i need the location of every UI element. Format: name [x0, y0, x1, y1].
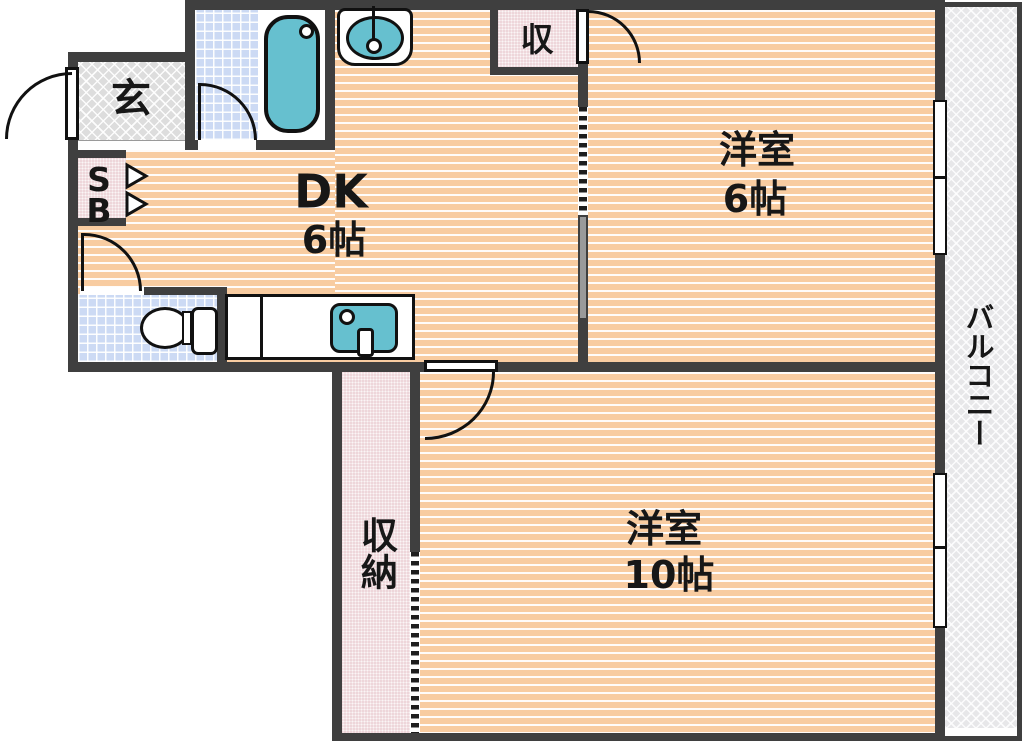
- floorplan: 玄 収 DK 6帖 洋室 6帖 洋室 10帖 収納 バルコニー S B: [0, 0, 1024, 741]
- room-label-balcony: バルコニー: [961, 303, 993, 448]
- window: [933, 473, 947, 628]
- wall: [935, 628, 945, 733]
- wall: [68, 139, 78, 372]
- wall: [332, 362, 342, 741]
- kitchen-faucet: [339, 309, 355, 325]
- partition-solid: [578, 63, 588, 107]
- room-label-entrance: 玄: [111, 77, 151, 121]
- wall: [935, 255, 945, 473]
- washbasin-faucet: [372, 6, 375, 42]
- wall: [68, 362, 425, 372]
- wall: [185, 140, 198, 150]
- partition-sliding-panel: [578, 215, 588, 320]
- room-label-room6: 洋室: [719, 130, 795, 172]
- shoebox-door-icon: [124, 162, 150, 218]
- window-mullion: [933, 176, 947, 179]
- wall: [144, 287, 227, 295]
- window-mullion: [933, 546, 947, 549]
- bathroom-door-gap: [198, 140, 256, 150]
- wall: [935, 0, 945, 100]
- wall: [185, 0, 195, 150]
- room10-door-leaf: [424, 360, 498, 372]
- wall: [68, 52, 195, 62]
- kitchen-tap: [357, 328, 374, 357]
- room-label-storage: 収納: [355, 516, 396, 590]
- shoebox-label-b: B: [86, 193, 111, 229]
- room-size-dk: 6帖: [302, 220, 366, 262]
- room-label-closet-top: 収: [521, 22, 554, 58]
- balcony-border: [1017, 2, 1022, 741]
- wall: [185, 0, 945, 10]
- wall: [497, 362, 945, 372]
- wall: [490, 0, 498, 75]
- wall: [256, 140, 335, 150]
- wall: [490, 67, 588, 75]
- entrance-step: [78, 140, 185, 150]
- room-size-room10: 10帖: [624, 555, 715, 597]
- room-size-room6: 6帖: [723, 179, 787, 221]
- balcony-border: [945, 736, 1022, 741]
- entrance-door-arc: [5, 72, 72, 139]
- wall: [68, 150, 126, 158]
- wall: [332, 733, 945, 741]
- partition-sliding-door: [579, 107, 587, 215]
- balcony-border: [945, 2, 1022, 7]
- wall: [410, 372, 420, 552]
- room-label-room10: 洋室: [626, 509, 702, 551]
- bathtub-drain: [299, 24, 314, 39]
- toilet-tank: [191, 307, 218, 355]
- kitchen-counter-divider: [260, 294, 263, 360]
- room-label-dk: DK: [294, 167, 368, 218]
- washbasin-faucet-knob: [366, 38, 382, 54]
- wall: [325, 0, 335, 150]
- storage-folding-door: [411, 552, 419, 733]
